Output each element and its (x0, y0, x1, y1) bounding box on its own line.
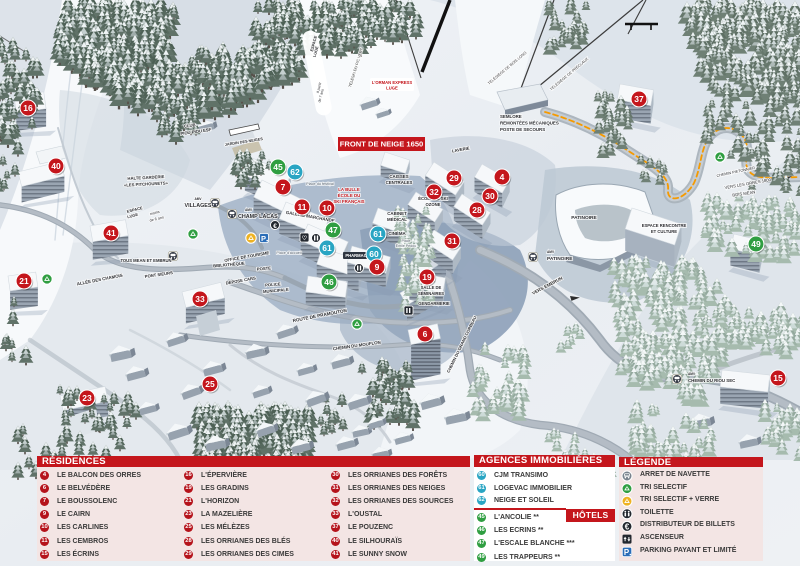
svg-text:ESPACE RENCONTRE: ESPACE RENCONTRE (642, 223, 687, 228)
svg-text:FRONT DE NEIGE 1650: FRONT DE NEIGE 1650 (340, 140, 424, 149)
svg-text:SÉMINAIRES: SÉMINAIRES (418, 291, 444, 296)
svg-text:LUGE: LUGE (386, 86, 398, 91)
svg-text:33: 33 (195, 294, 205, 304)
svg-text:MÉDICAL: MÉDICAL (387, 217, 407, 222)
svg-text:61: 61 (322, 243, 332, 253)
svg-text:25: 25 (205, 379, 215, 389)
svg-text:L'ORMAN EXPRESS: L'ORMAN EXPRESS (372, 80, 413, 85)
svg-text:ET CULTURE: ET CULTURE (651, 229, 677, 234)
svg-text:Place: Place (402, 239, 411, 243)
svg-text:6: 6 (423, 329, 428, 339)
svg-text:Émile Pédou: Émile Pédou (396, 243, 416, 248)
svg-text:15: 15 (773, 373, 783, 383)
svg-text:28: 28 (472, 205, 482, 215)
svg-text:40: 40 (51, 161, 61, 171)
svg-text:60: 60 (369, 249, 379, 259)
svg-text:PATINOIRE: PATINOIRE (547, 256, 573, 262)
svg-text:CHEMIN DU RIOU SEC: CHEMIN DU RIOU SEC (688, 378, 736, 383)
svg-text:61: 61 (373, 229, 383, 239)
svg-text:CHAMP LACAS: CHAMP LACAS (238, 214, 278, 220)
svg-text:21: 21 (19, 276, 29, 286)
svg-text:AMV: AMV (547, 250, 555, 254)
svg-text:CAISSES: CAISSES (389, 174, 408, 179)
svg-text:16: 16 (23, 103, 33, 113)
svg-text:AMV: AMV (688, 372, 696, 376)
svg-text:OZONE: OZONE (426, 202, 441, 207)
svg-text:€: € (273, 223, 277, 230)
svg-text:11: 11 (298, 202, 307, 212)
svg-text:CABINET: CABINET (387, 211, 407, 216)
svg-text:PATINOIRE: PATINOIRE (571, 215, 597, 221)
svg-text:POSTE DE SECOURS: POSTE DE SECOURS (500, 127, 545, 132)
svg-text:62: 62 (290, 167, 300, 177)
svg-text:REMONTÉES MÉCANIQUES: REMONTÉES MÉCANIQUES (500, 121, 559, 126)
svg-text:CENTRALES: CENTRALES (386, 180, 413, 185)
svg-text:SEMLORE: SEMLORE (500, 114, 522, 119)
svg-text:23: 23 (82, 393, 92, 403)
svg-text:46: 46 (324, 277, 334, 287)
svg-text:47: 47 (328, 225, 338, 235)
svg-text:AMV: AMV (194, 197, 202, 201)
svg-text:♡: ♡ (302, 235, 307, 242)
svg-text:30: 30 (485, 191, 495, 201)
svg-text:31: 31 (447, 236, 457, 246)
svg-text:19: 19 (422, 272, 432, 282)
svg-text:€: € (625, 522, 630, 531)
svg-text:LA BULLE: LA BULLE (338, 187, 360, 192)
svg-text:4: 4 (500, 172, 505, 182)
svg-text:32: 32 (429, 187, 439, 197)
svg-text:SKI FRANÇAIS: SKI FRANÇAIS (333, 199, 364, 204)
svg-text:45: 45 (273, 162, 283, 172)
svg-text:49: 49 (751, 239, 761, 249)
svg-text:TOUS MEAN ET EMBRUN: TOUS MEAN ET EMBRUN (120, 258, 171, 263)
svg-text:GENDARMERIE: GENDARMERIE (418, 301, 450, 306)
svg-text:29: 29 (449, 173, 459, 183)
svg-text:P: P (624, 548, 629, 557)
svg-text:P: P (261, 234, 266, 243)
svg-text:VILLAGES: VILLAGES (185, 203, 212, 209)
svg-text:AMV: AMV (245, 208, 253, 212)
svg-text:ÉCOLE DU: ÉCOLE DU (338, 193, 361, 198)
svg-text:37: 37 (634, 94, 644, 104)
svg-text:10: 10 (322, 203, 332, 213)
svg-text:CINÉMA: CINÉMA (388, 231, 406, 236)
svg-text:41: 41 (106, 228, 116, 238)
svg-text:Place d'accueil: Place d'accueil (276, 251, 301, 255)
svg-text:7: 7 (281, 182, 286, 192)
svg-text:9: 9 (375, 262, 380, 272)
svg-text:Place du festival: Place du festival (306, 182, 334, 186)
